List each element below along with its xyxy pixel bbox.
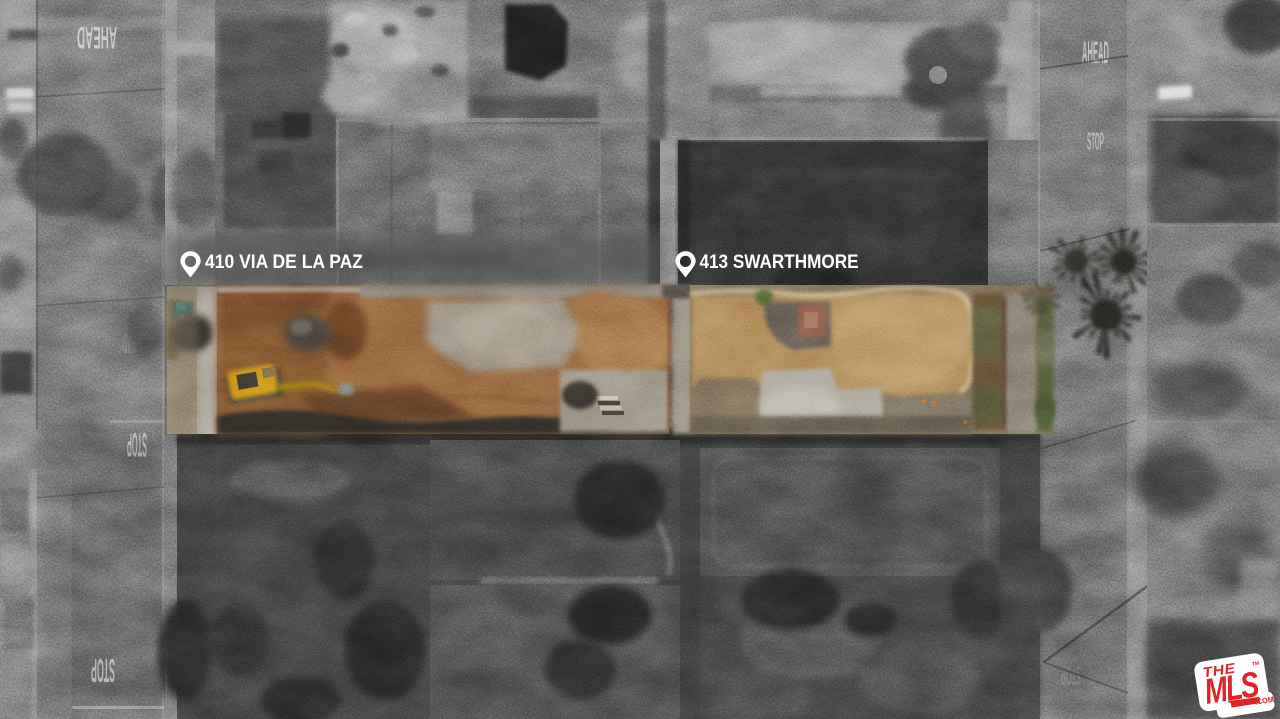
svg-text:410 VIA DE LA PAZ: 410 VIA DE LA PAZ [205,252,363,273]
svg-text:TM: TM [1252,661,1260,668]
svg-text:413 SWARTHMORE: 413 SWARTHMORE [700,252,859,273]
